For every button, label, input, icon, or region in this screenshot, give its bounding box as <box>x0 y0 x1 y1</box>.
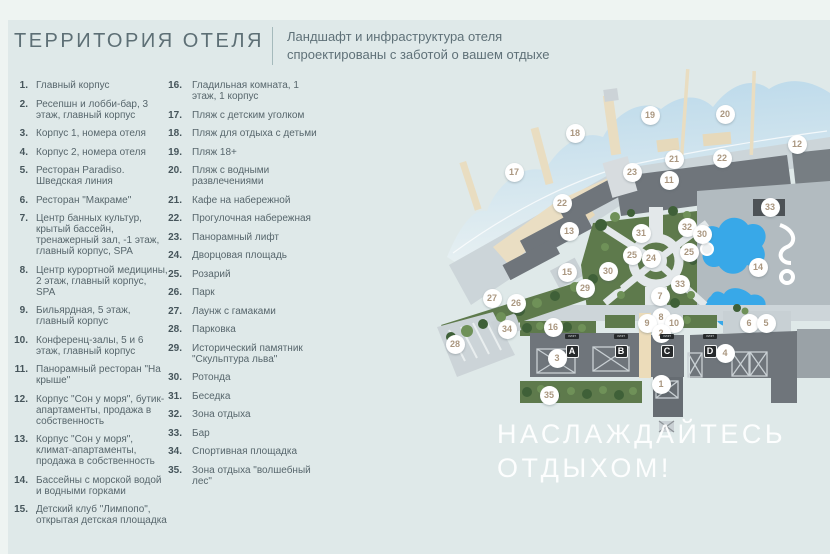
map-marker-27: 27 <box>483 289 502 308</box>
legend-item-25: 25.Розарий <box>160 269 324 280</box>
legend-item-10: 10.Конференц-залы, 5 и 6 этаж, главный к… <box>12 335 172 357</box>
legend-item-number: 18. <box>160 128 182 139</box>
map-marker-29: 29 <box>576 279 595 298</box>
green-strip-bottom <box>520 381 642 403</box>
map-marker-6: 6 <box>740 314 759 333</box>
legend-item-7: 7.Центр банных культур, крытый бассейн, … <box>12 213 172 257</box>
legend-item-6: 6.Ресторан "Макраме" <box>12 195 172 206</box>
legend-item-9: 9.Бильярдная, 5 этаж, главный корпус <box>12 305 172 327</box>
map-marker-34: 34 <box>498 320 517 339</box>
map-marker-24: 24 <box>642 249 661 268</box>
legend-item-16: 16.Гладильная комната, 1 этаж, 1 корпус <box>160 80 324 102</box>
map-marker-30: 30 <box>599 262 618 281</box>
legend-item-number: 19. <box>160 147 182 158</box>
legend-item-35: 35.Зона отдыха "волшебный лес" <box>160 465 324 487</box>
legend-item-label: Детский клуб "Лимпопо", открытая детская… <box>36 504 168 526</box>
legend-item-label: Ресторан Paradiso. Шведская линия <box>36 165 168 187</box>
legend-item-18: 18.Пляж для отдыха с детьми <box>160 128 324 139</box>
legend-item-label: Пляж 18+ <box>192 147 320 158</box>
legend-item-13: 13.Корпус "Сон у моря", климат-апартамен… <box>12 434 172 467</box>
legend-item-number: 6. <box>12 195 28 206</box>
map-marker-31: 31 <box>632 224 651 243</box>
legend-item-34: 34.Спортивная площадка <box>160 446 324 457</box>
legend-item-label: Конференц-залы, 5 и 6 этаж, главный корп… <box>36 335 168 357</box>
legend-item-26: 26.Парк <box>160 287 324 298</box>
legend-item-number: 15. <box>12 504 28 526</box>
map-marker-3: 3 <box>548 349 567 368</box>
legend-item-label: Бильярдная, 5 этаж, главный корпус <box>36 305 168 327</box>
map-marker-25: 25 <box>623 246 642 265</box>
map-marker-15: 15 <box>558 263 577 282</box>
legend-item-number: 2. <box>12 99 28 121</box>
subtitle-line-1: Ландшафт и инфраструктура отеля <box>287 28 550 46</box>
legend-item-number: 17. <box>160 110 182 121</box>
legend-item-label: Корпус "Сон у моря", бутик-апартаменты, … <box>36 394 168 427</box>
legend-item-2: 2.Ресепшн и лобби-бар, 3 этаж, главный к… <box>12 99 172 121</box>
legend-item-label: Бассейны с морской водой и водными горка… <box>36 475 168 497</box>
legend-item-label: Спортивная площадка <box>192 446 320 457</box>
legend-item-32: 32.Зона отдыха <box>160 409 324 420</box>
legend-item-label: Центр банных культур, крытый бассейн, тр… <box>36 213 168 257</box>
legend-item-label: Ротонда <box>192 372 320 383</box>
legend-item-29: 29.Исторический памятник "Скульптура льв… <box>160 343 324 365</box>
building-letter-B: B <box>615 345 628 358</box>
legend-item-label: Пляж для отдыха с детьми <box>192 128 320 139</box>
legend-item-number: 23. <box>160 232 182 243</box>
legend-item-number: 35. <box>160 465 182 487</box>
legend-item-label: Пляж с детским уголком <box>192 110 320 121</box>
map-marker-33: 33 <box>761 198 780 217</box>
legend-item-number: 21. <box>160 195 182 206</box>
legend-item-label: Корпус 2, номера отеля <box>36 147 168 158</box>
park-north-path <box>649 207 663 239</box>
legend-item-label: Беседка <box>192 391 320 402</box>
lift-label-C: ЛИФТ <box>660 334 674 339</box>
legend-item-label: Ресепшн и лобби-бар, 3 этаж, главный кор… <box>36 99 168 121</box>
legend-item-label: Парковка <box>192 324 320 335</box>
building-block-d <box>690 331 797 403</box>
map-marker-11: 11 <box>660 171 679 190</box>
map-marker-23: 23 <box>623 163 642 182</box>
legend-item-number: 12. <box>12 394 28 427</box>
subtitle-line-2: спроектированы с заботой о вашем отдыхе <box>287 46 550 64</box>
lift-label-A: ЛИФТ <box>565 334 579 339</box>
legend-item-label: Зона отдыха <box>192 409 320 420</box>
legend-item-number: 25. <box>160 269 182 280</box>
legend-item-27: 27.Лаунж с гамаками <box>160 306 324 317</box>
legend-item-label: Панорамный лифт <box>192 232 320 243</box>
legend-item-3: 3.Корпус 1, номера отеля <box>12 128 172 139</box>
legend-item-20: 20.Пляж с водными развлечениями <box>160 165 324 187</box>
map-marker-21: 21 <box>665 150 684 169</box>
legend-item-31: 31.Беседка <box>160 391 324 402</box>
legend-item-label: Главный корпус <box>36 80 168 91</box>
legend-item-17: 17.Пляж с детским уголком <box>160 110 324 121</box>
legend-item-label: Кафе на набережной <box>192 195 320 206</box>
legend-item-15: 15.Детский клуб "Лимпопо", открытая детс… <box>12 504 172 526</box>
legend-item-label: Зона отдыха "волшебный лес" <box>192 465 320 487</box>
legend-item-4: 4.Корпус 2, номера отеля <box>12 147 172 158</box>
legend-item-number: 28. <box>160 324 182 335</box>
page-title: ТЕРРИТОРИЯ ОТЕЛЯ <box>14 30 264 53</box>
map-marker-2: 2 <box>652 324 671 343</box>
map-marker-33: 33 <box>671 275 690 294</box>
legend-item-number: 4. <box>12 147 28 158</box>
pier-head <box>603 88 619 102</box>
legend-column-2: 16.Гладильная комната, 1 этаж, 1 корпус1… <box>160 80 324 494</box>
legend-item-number: 11. <box>12 364 28 386</box>
legend-item-label: Исторический памятник "Скульптура льва" <box>192 343 320 365</box>
map-marker-14: 14 <box>749 258 768 277</box>
legend-item-number: 29. <box>160 343 182 365</box>
building-letter-C: C <box>661 345 674 358</box>
legend-item-number: 20. <box>160 165 182 187</box>
map-marker-16: 16 <box>544 318 563 337</box>
legend-column-1: 1.Главный корпус2.Ресепшн и лобби-бар, 3… <box>12 80 172 534</box>
legend-item-label: Центр курортной медицины, 2 этаж, главны… <box>36 265 168 298</box>
overlay-line-2: ОТДЫХОМ! <box>497 451 786 485</box>
map-marker-28: 28 <box>446 335 465 354</box>
map-marker-25: 25 <box>680 243 699 262</box>
legend-item-19: 19.Пляж 18+ <box>160 147 324 158</box>
legend-item-number: 1. <box>12 80 28 91</box>
lift-label-D: ЛИФТ <box>703 334 717 339</box>
map-marker-18: 18 <box>566 124 585 143</box>
building-letter-D: D <box>704 345 717 358</box>
building-block-right <box>797 329 830 378</box>
legend-item-label: Панорамный ресторан "На крыше" <box>36 364 168 386</box>
building-letter-A: A <box>566 345 579 358</box>
legend-item-number: 24. <box>160 250 182 261</box>
legend-item-14: 14.Бассейны с морской водой и водными го… <box>12 475 172 497</box>
legend-item-12: 12.Корпус "Сон у моря", бутик-апартамент… <box>12 394 172 427</box>
legend-item-22: 22.Прогулочная набережная <box>160 213 324 224</box>
hotel-territory-map: НАСЛАЖДАЙТЕСЬ ОТДЫХОМ! 17181920122122231… <box>435 65 830 554</box>
page-subtitle: Ландшафт и инфраструктура отеля спроекти… <box>287 28 550 64</box>
legend-item-number: 26. <box>160 287 182 298</box>
legend-item-21: 21.Кафе на набережной <box>160 195 324 206</box>
map-marker-4: 4 <box>716 344 735 363</box>
legend-item-label: Прогулочная набережная <box>192 213 320 224</box>
header-divider <box>272 27 273 65</box>
legend-item-number: 33. <box>160 428 182 439</box>
legend-item-number: 3. <box>12 128 28 139</box>
legend-item-number: 32. <box>160 409 182 420</box>
legend-item-number: 8. <box>12 265 28 298</box>
map-marker-13: 13 <box>560 222 579 241</box>
legend-item-number: 10. <box>12 335 28 357</box>
legend-item-8: 8.Центр курортной медицины, 2 этаж, глав… <box>12 265 172 298</box>
map-marker-22: 22 <box>713 149 732 168</box>
legend-item-5: 5.Ресторан Paradiso. Шведская линия <box>12 165 172 187</box>
legend-item-label: Парк <box>192 287 320 298</box>
legend-item-label: Бар <box>192 428 320 439</box>
legend-item-24: 24.Дворцовая площадь <box>160 250 324 261</box>
legend-item-number: 27. <box>160 306 182 317</box>
legend-item-number: 31. <box>160 391 182 402</box>
legend-item-number: 34. <box>160 446 182 457</box>
map-marker-26: 26 <box>507 294 526 313</box>
legend-item-number: 14. <box>12 475 28 497</box>
map-marker-20: 20 <box>716 105 735 124</box>
green-strip-right-1 <box>605 315 635 328</box>
rotunda <box>701 243 713 255</box>
map-marker-35: 35 <box>540 386 559 405</box>
legend-item-label: Корпус 1, номера отеля <box>36 128 168 139</box>
map-marker-12: 12 <box>788 135 807 154</box>
legend-item-33: 33.Бар <box>160 428 324 439</box>
legend-item-number: 9. <box>12 305 28 327</box>
legend-item-28: 28.Парковка <box>160 324 324 335</box>
map-overlay-text: НАСЛАЖДАЙТЕСЬ ОТДЫХОМ! <box>497 417 786 485</box>
legend-item-label: Розарий <box>192 269 320 280</box>
map-marker-7: 7 <box>651 287 670 306</box>
legend-item-number: 30. <box>160 372 182 383</box>
legend-item-11: 11.Панорамный ресторан "На крыше" <box>12 364 172 386</box>
legend-item-30: 30.Ротонда <box>160 372 324 383</box>
map-marker-19: 19 <box>641 106 660 125</box>
map-marker-5: 5 <box>757 314 776 333</box>
legend-item-number: 16. <box>160 80 182 102</box>
legend-item-1: 1.Главный корпус <box>12 80 172 91</box>
legend-item-label: Ресторан "Макраме" <box>36 195 168 206</box>
legend-item-label: Пляж с водными развлечениями <box>192 165 320 187</box>
map-marker-17: 17 <box>505 163 524 182</box>
legend-item-label: Лаунж с гамаками <box>192 306 320 317</box>
legend-item-23: 23.Панорамный лифт <box>160 232 324 243</box>
legend-item-number: 22. <box>160 213 182 224</box>
legend-item-number: 5. <box>12 165 28 187</box>
map-marker-22: 22 <box>553 194 572 213</box>
map-marker-1: 1 <box>652 375 671 394</box>
lift-label-B: ЛИФТ <box>614 334 628 339</box>
legend-item-label: Гладильная комната, 1 этаж, 1 корпус <box>192 80 320 102</box>
legend-item-number: 7. <box>12 213 28 257</box>
legend-item-label: Корпус "Сон у моря", климат-апартаменты,… <box>36 434 168 467</box>
legend-item-number: 13. <box>12 434 28 467</box>
overlay-line-1: НАСЛАЖДАЙТЕСЬ <box>497 417 786 451</box>
map-marker-30: 30 <box>693 225 712 244</box>
legend-item-label: Дворцовая площадь <box>192 250 320 261</box>
